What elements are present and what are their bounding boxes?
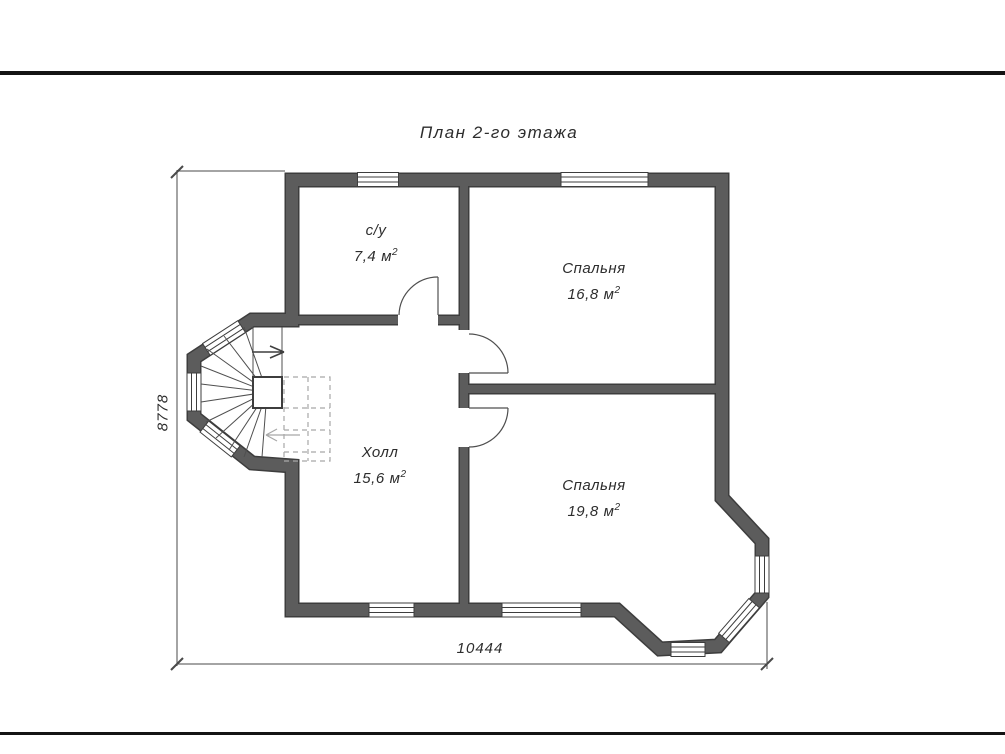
- room-area: 15,6м2: [310, 463, 450, 490]
- room-area: 19,8м2: [524, 496, 664, 523]
- doors: [399, 277, 508, 447]
- window-bottom-bedroom2: [502, 603, 581, 617]
- dimension-width: 10444: [440, 640, 520, 657]
- room-area: 7,4м2: [306, 241, 446, 268]
- window-stair-left: [187, 373, 201, 411]
- stair-up-arrow: [252, 346, 284, 358]
- room-area: 16,8м2: [524, 279, 664, 306]
- windows: [187, 173, 769, 657]
- door-bedroom-1: [469, 334, 508, 373]
- window-bottom-hall: [369, 603, 414, 617]
- room-label-bedroom-1: Спальня 16,8м2: [524, 259, 664, 306]
- dimension-lines: [171, 166, 773, 670]
- window-top-bedroom1: [561, 173, 648, 187]
- room-label-bathroom: с/у 7,4м2: [306, 221, 446, 268]
- door-bathroom: [399, 277, 438, 315]
- room-label-bedroom-2: Спальня 19,8м2: [524, 476, 664, 523]
- stair-down-arrow: [266, 429, 300, 441]
- room-name: с/у: [306, 221, 446, 241]
- room-name: Спальня: [524, 259, 664, 279]
- room-name: Спальня: [524, 476, 664, 496]
- window-top-bathroom: [358, 173, 399, 187]
- room-label-hall: Холл 15,6м2: [310, 443, 450, 490]
- window-stair-sw-diagonal: [200, 421, 240, 457]
- window-bay-diagonal: [719, 599, 760, 643]
- room-name: Холл: [310, 443, 450, 463]
- door-bedroom-2: [469, 408, 508, 447]
- stair-newel: [253, 377, 282, 408]
- walls: [194, 180, 762, 649]
- window-bay-right: [755, 556, 769, 593]
- dimension-height: 8778: [155, 383, 172, 443]
- window-bay-bottom: [671, 643, 705, 657]
- floor-plan-canvas: План 2-го этажа: [0, 0, 1005, 754]
